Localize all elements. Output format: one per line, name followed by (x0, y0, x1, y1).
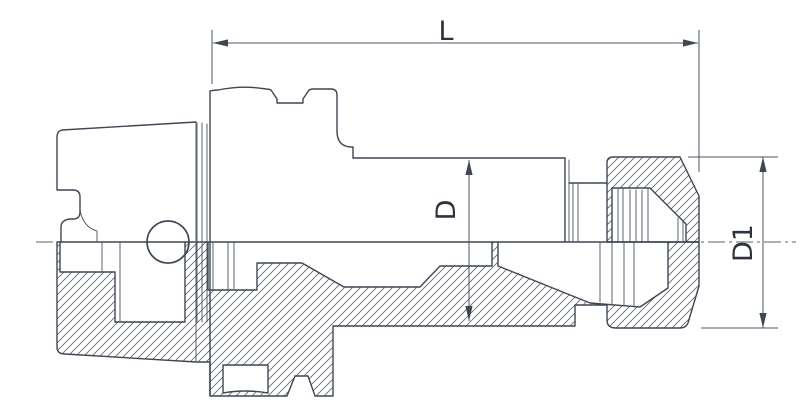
arrowhead-up (759, 157, 766, 172)
collet-nut (607, 157, 699, 242)
thread-neck (569, 183, 607, 242)
drawing-sheet: L D D1 (0, 0, 812, 417)
arrowhead-down (759, 313, 766, 328)
arrowhead-up (465, 160, 472, 175)
dimension-L-label: L (438, 16, 453, 47)
lower-section-cut (57, 242, 699, 396)
dimension-D-label: D (431, 200, 462, 221)
dimension-L: L (212, 16, 699, 172)
arrowhead-right (683, 39, 698, 46)
arrowhead-left (213, 39, 228, 46)
dimension-D1-label: D1 (728, 224, 759, 262)
toolholder-technical-drawing: L D D1 (0, 0, 812, 417)
dimension-D1: D1 (688, 157, 778, 328)
